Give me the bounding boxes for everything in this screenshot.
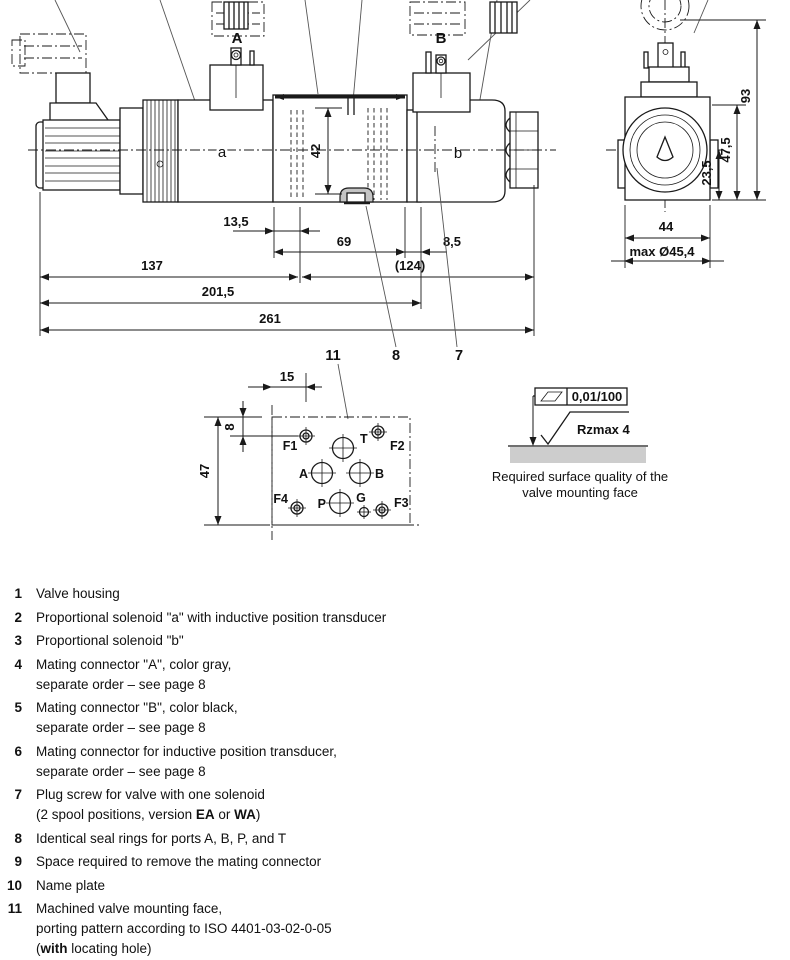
dim-261: 261 xyxy=(40,311,534,330)
port-F1: F1 xyxy=(283,427,315,453)
mounting-face: 15 8 47 F1 T F2 xyxy=(197,369,420,540)
legend-item-line: Machined valve mounting face, xyxy=(36,899,332,919)
svg-text:201,5: 201,5 xyxy=(202,284,235,299)
dim-201-5: 201,5 xyxy=(40,284,421,303)
legend-item-line: Proportional solenoid "a" with inductive… xyxy=(36,608,386,628)
legend-item-3: 3Proportional solenoid "b" xyxy=(0,631,600,651)
legend-item-line: Proportional solenoid "b" xyxy=(36,631,184,651)
svg-text:F1: F1 xyxy=(283,439,298,453)
valve-side-view: A xyxy=(12,0,556,203)
callouts: 11 8 7 xyxy=(325,168,463,419)
dim-137: 137 xyxy=(40,258,298,277)
dim-max-diameter: max Ø45,4 xyxy=(611,244,724,265)
mating-connector-b: B xyxy=(413,30,470,112)
dim-8-5: 8,5 xyxy=(391,234,461,256)
legend-item-line: Identical seal rings for ports A, B, P, … xyxy=(36,829,286,849)
legend-item-number: 7 xyxy=(0,785,22,825)
legend-item-line: Mating connector "A", color gray, xyxy=(36,655,231,675)
callout-8: 8 xyxy=(392,348,400,364)
legend-item-text: Proportional solenoid "a" with inductive… xyxy=(36,608,386,628)
dim-69: 69 xyxy=(274,234,405,252)
legend-item-number: 9 xyxy=(0,852,22,872)
svg-text:F3: F3 xyxy=(394,496,409,510)
svg-text:42: 42 xyxy=(308,144,323,158)
legend-item-line: (2 spool positions, version EA or WA) xyxy=(36,805,265,825)
transducer-connector xyxy=(12,34,113,127)
solenoid-a xyxy=(120,100,273,202)
legend-item-2: 2Proportional solenoid "a" with inductiv… xyxy=(0,608,600,628)
dim-124: (124) xyxy=(302,258,534,277)
svg-text:B: B xyxy=(375,467,384,481)
svg-text:P: P xyxy=(318,497,326,511)
legend-item-number: 1 xyxy=(0,584,22,604)
seal-ring-port xyxy=(340,188,373,203)
port-F3: F3 xyxy=(373,496,409,519)
surface-caption-line1: Required surface quality of the xyxy=(492,469,668,484)
legend-item-11: 11Machined valve mounting face,porting p… xyxy=(0,899,600,960)
legend-item-text: Space required to remove the mating conn… xyxy=(36,852,321,872)
mating-connector-a: A xyxy=(210,30,263,110)
mounting-surface-bar xyxy=(510,447,646,463)
svg-text:44: 44 xyxy=(659,219,674,234)
side-view-dimensions: 13,5 69 8,5 137 (124) 201,5 261 xyxy=(40,185,534,336)
legend-item-line: Plug screw for valve with one solenoid xyxy=(36,785,265,805)
legend-item-number: 5 xyxy=(0,698,22,738)
legend-item-line: separate order – see page 8 xyxy=(36,762,337,782)
legend-item-text: Valve housing xyxy=(36,584,120,604)
legend-item-line: Valve housing xyxy=(36,584,120,604)
surface-quality-symbol: 0,01/100 Rzmax 4 Required surface qualit… xyxy=(492,388,668,500)
legend-item-line: Name plate xyxy=(36,876,105,896)
callout-7: 7 xyxy=(455,348,463,364)
connector-removal-space-b xyxy=(410,2,517,35)
svg-text:69: 69 xyxy=(337,234,351,249)
dim-8: 8 xyxy=(222,401,247,452)
legend-item-text: Identical seal rings for ports A, B, P, … xyxy=(36,829,286,849)
legend-item-6: 6Mating connector for inductive position… xyxy=(0,742,600,782)
legend-item-text: Plug screw for valve with one solenoid(2… xyxy=(36,785,265,825)
svg-text:47: 47 xyxy=(197,464,212,478)
svg-text:8: 8 xyxy=(222,423,237,430)
legend-item-10: 10Name plate xyxy=(0,876,600,896)
position-transducer xyxy=(36,120,120,190)
svg-text:T: T xyxy=(360,432,368,446)
legend-item-text: Mating connector for inductive position … xyxy=(36,742,337,782)
connector-b-label: B xyxy=(436,30,447,47)
legend-item-text: Machined valve mounting face,porting pat… xyxy=(36,899,332,960)
dim-13-5: 13,5 xyxy=(223,214,320,235)
port-A: A xyxy=(299,459,336,487)
port-T: T xyxy=(329,432,368,462)
solenoid-b-label: b xyxy=(454,145,462,162)
roughness-value: Rzmax 4 xyxy=(577,422,631,437)
svg-text:47,5: 47,5 xyxy=(718,137,733,162)
solenoid-b: b xyxy=(407,100,538,202)
legend-item-line: separate order – see page 8 xyxy=(36,675,231,695)
svg-text:max Ø45,4: max Ø45,4 xyxy=(629,244,695,259)
legend-item-text: Name plate xyxy=(36,876,105,896)
port-F2: F2 xyxy=(369,423,405,453)
svg-text:137: 137 xyxy=(141,258,163,273)
legend-item-8: 8Identical seal rings for ports A, B, P,… xyxy=(0,829,600,849)
legend-item-9: 9Space required to remove the mating con… xyxy=(0,852,600,872)
svg-text:A: A xyxy=(299,467,308,481)
callout-11: 11 xyxy=(325,348,340,364)
port-P: P xyxy=(318,489,354,517)
legend-item-5: 5Mating connector "B", color black,separ… xyxy=(0,698,600,738)
solenoid-a-label: a xyxy=(218,144,227,161)
dim-44: 44 xyxy=(625,219,710,238)
surface-caption-line2: valve mounting face xyxy=(522,485,638,500)
legend-item-number: 3 xyxy=(0,631,22,651)
port-F4: F4 xyxy=(273,492,306,517)
svg-text:15: 15 xyxy=(280,369,294,384)
legend-item-text: Proportional solenoid "b" xyxy=(36,631,184,651)
svg-text:13,5: 13,5 xyxy=(223,214,248,229)
legend-item-7: 7Plug screw for valve with one solenoid(… xyxy=(0,785,600,825)
legend-item-line: porting pattern according to ISO 4401-03… xyxy=(36,919,332,939)
dim-93: 93 xyxy=(738,20,757,200)
legend-item-number: 4 xyxy=(0,655,22,695)
svg-text:261: 261 xyxy=(259,311,281,326)
legend-item-line: (with locating hole) xyxy=(36,939,332,959)
legend-item-line: Mating connector "B", color black, xyxy=(36,698,238,718)
legend-item-number: 11 xyxy=(0,899,22,960)
datasheet-figure-page: { "drawing": { "side_view": { "connector… xyxy=(0,0,790,960)
legend-item-line: Mating connector for inductive position … xyxy=(36,742,337,762)
dim-15: 15 xyxy=(248,369,322,391)
legend: 1Valve housing2Proportional solenoid "a"… xyxy=(0,584,600,960)
valve-end-view: 93 47,5 23,5 44 max Ø45,4 xyxy=(606,0,766,268)
valve-housing xyxy=(273,94,407,202)
legend-item-number: 8 xyxy=(0,829,22,849)
port-B: B xyxy=(346,459,384,487)
flatness-tolerance: 0,01/100 xyxy=(572,389,623,404)
end-view-connector xyxy=(641,43,697,97)
legend-item-1: 1Valve housing xyxy=(0,584,600,604)
legend-item-text: Mating connector "B", color black,separa… xyxy=(36,698,238,738)
legend-item-4: 4Mating connector "A", color gray,separa… xyxy=(0,655,600,695)
port-G: G xyxy=(356,491,371,519)
svg-text:G: G xyxy=(356,491,366,505)
svg-text:F2: F2 xyxy=(390,439,405,453)
svg-text:93: 93 xyxy=(738,89,753,103)
valve-technical-drawing: A xyxy=(0,0,790,578)
dim-47: 47 xyxy=(197,417,218,525)
dim-47-5: 47,5 xyxy=(718,105,737,200)
connector-a-label: A xyxy=(232,30,243,47)
svg-text:F4: F4 xyxy=(273,492,288,506)
legend-item-text: Mating connector "A", color gray,separat… xyxy=(36,655,231,695)
legend-item-line: separate order – see page 8 xyxy=(36,718,238,738)
svg-text:23,5: 23,5 xyxy=(699,160,714,185)
svg-text:(124): (124) xyxy=(395,258,425,273)
legend-item-line: Space required to remove the mating conn… xyxy=(36,852,321,872)
legend-item-number: 2 xyxy=(0,608,22,628)
legend-item-number: 6 xyxy=(0,742,22,782)
legend-item-number: 10 xyxy=(0,876,22,896)
